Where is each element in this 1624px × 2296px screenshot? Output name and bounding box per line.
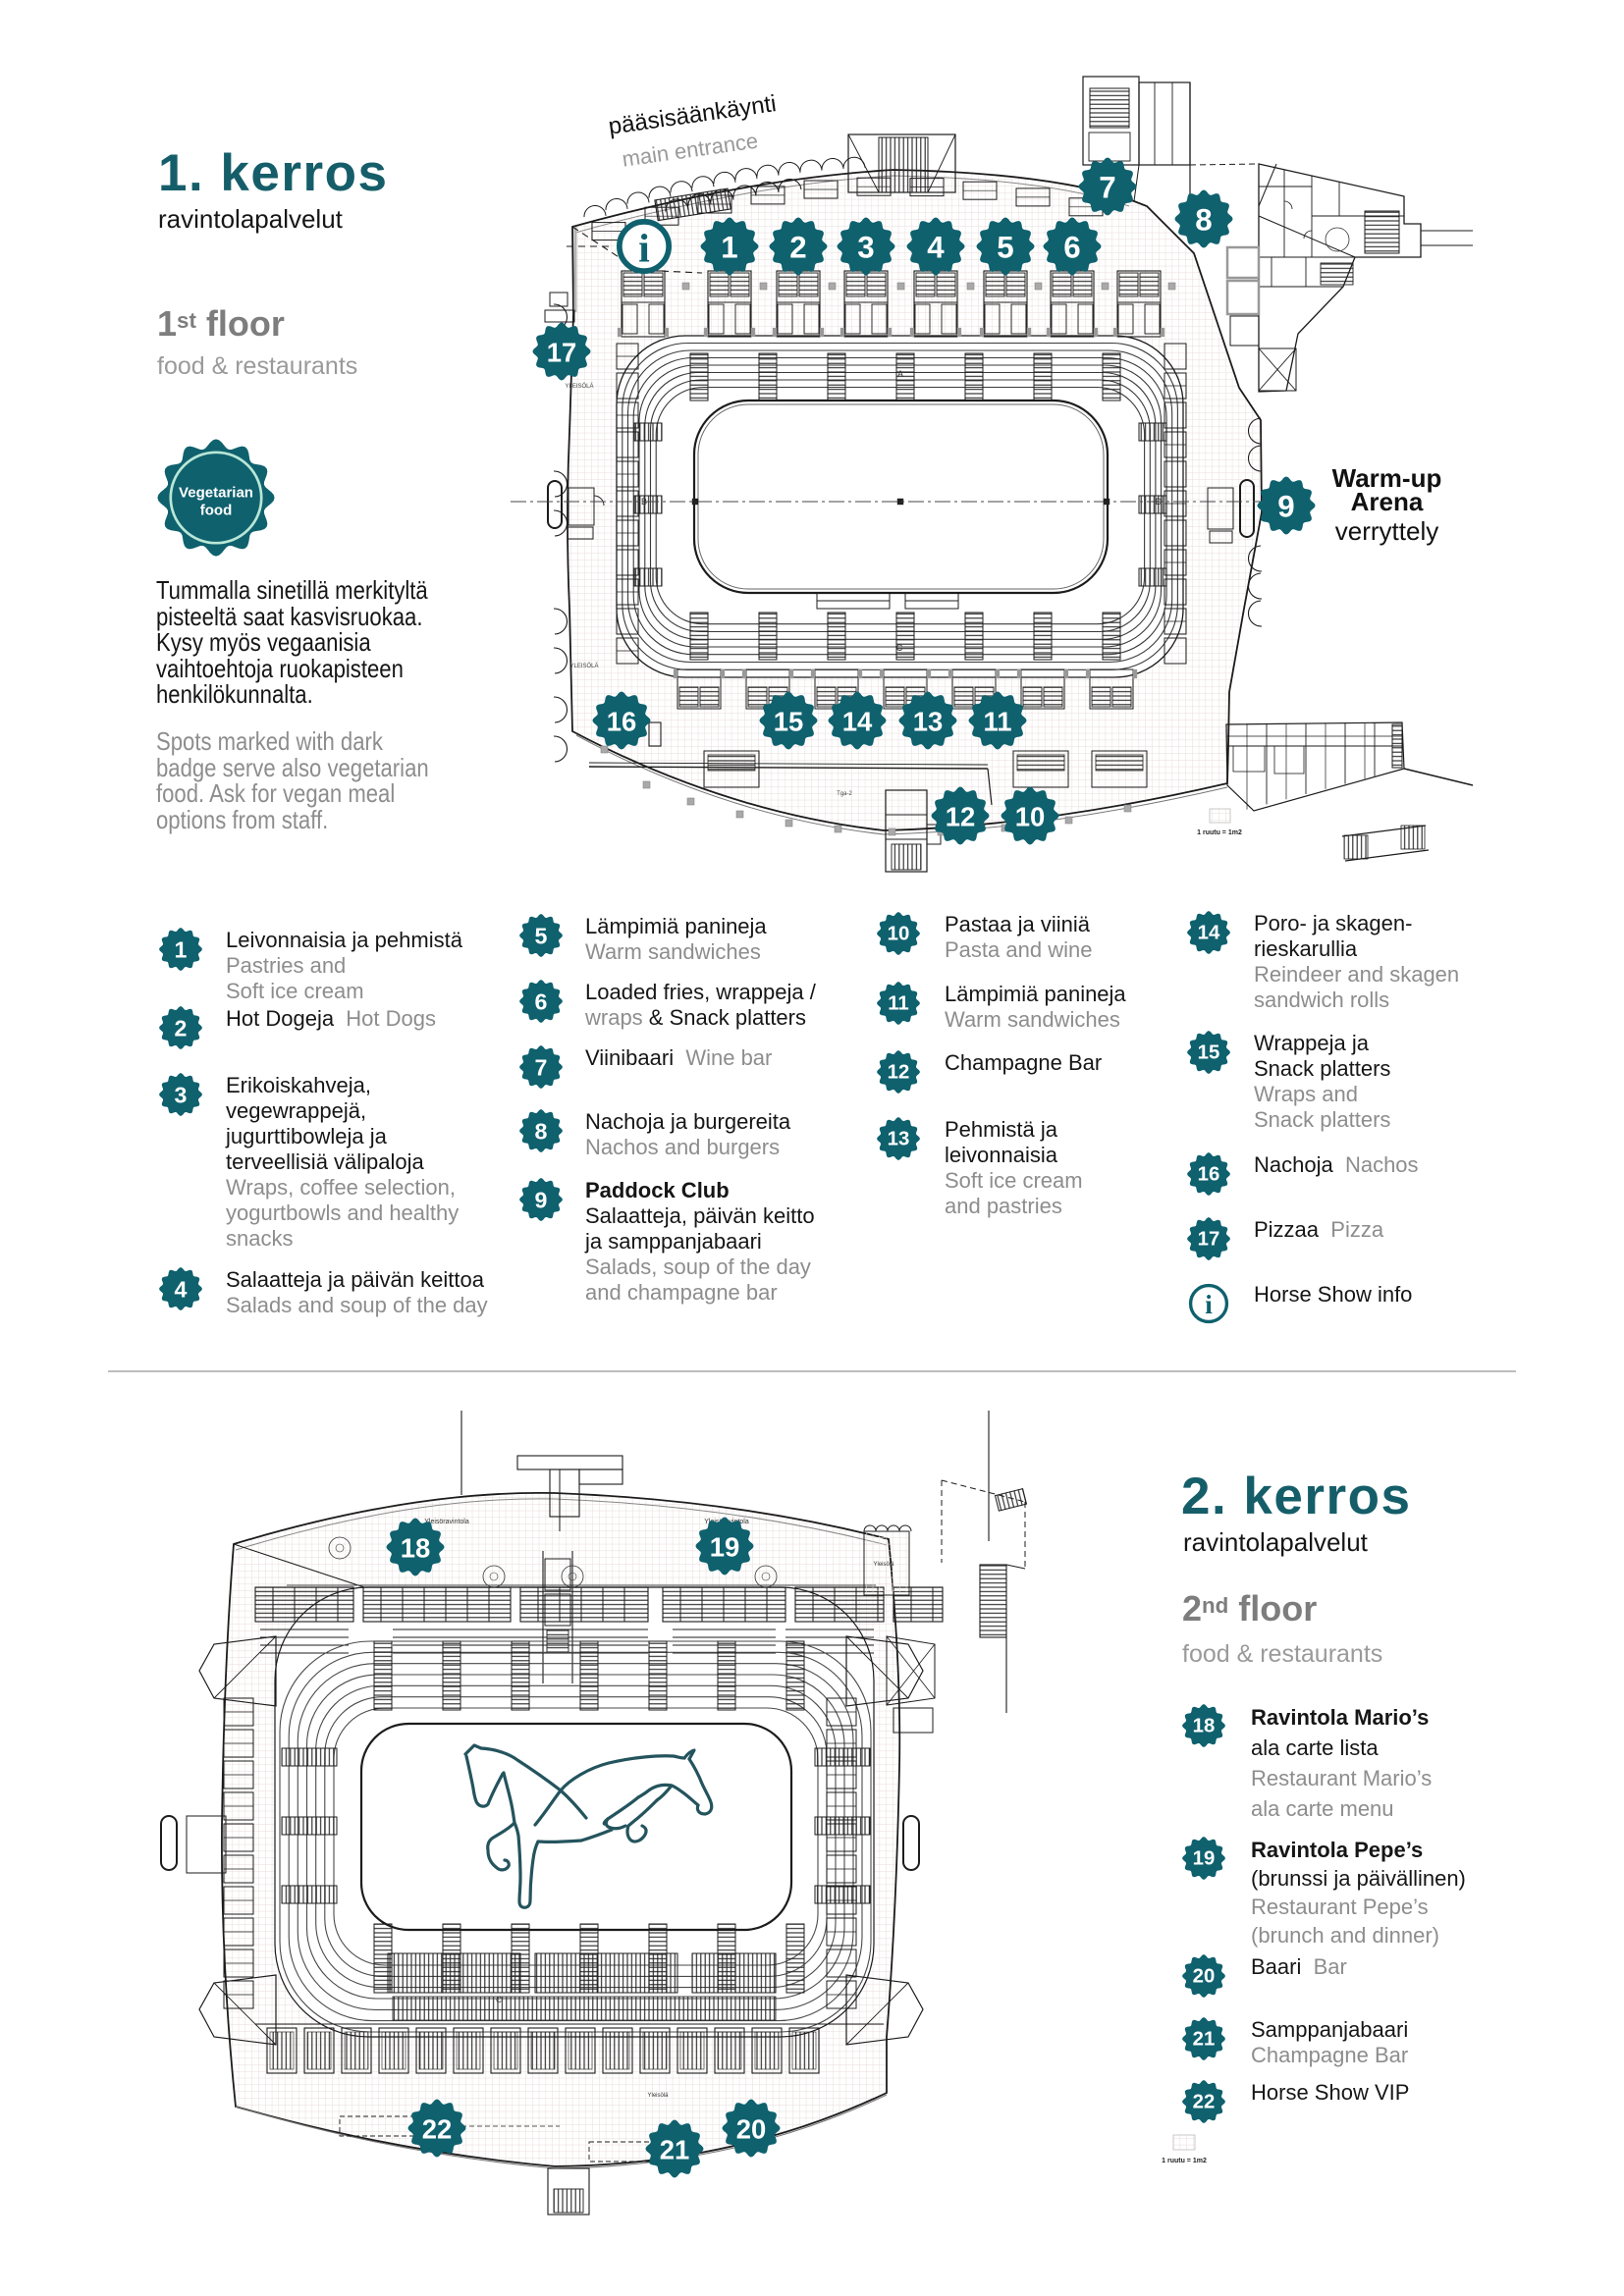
svg-text:17: 17 — [547, 337, 577, 367]
svg-text:Vegetarian: Vegetarian — [179, 485, 253, 502]
svg-text:9: 9 — [535, 1188, 548, 1213]
svg-text:21: 21 — [660, 2134, 690, 2164]
svg-text:YLEISÖLÄ: YLEISÖLÄ — [569, 663, 598, 669]
svg-text:10: 10 — [888, 924, 910, 945]
svg-text:19: 19 — [710, 1531, 740, 1562]
svg-text:3: 3 — [175, 1083, 188, 1108]
svg-text:6: 6 — [535, 989, 548, 1015]
svg-text:18: 18 — [401, 1532, 431, 1563]
svg-text:food: food — [200, 503, 233, 519]
svg-text:7: 7 — [1099, 170, 1115, 204]
svg-text:2: 2 — [789, 230, 806, 264]
svg-text:15: 15 — [774, 706, 804, 736]
svg-text:20: 20 — [736, 2113, 767, 2144]
svg-text:Yleisölä: Yleisölä — [873, 1562, 894, 1568]
svg-text:Yleisölä: Yleisölä — [647, 2093, 669, 2099]
svg-text:Tga-2: Tga-2 — [837, 791, 852, 797]
svg-text:12: 12 — [888, 1062, 910, 1084]
svg-text:1: 1 — [721, 230, 737, 264]
svg-text:A: A — [897, 369, 903, 379]
svg-text:8: 8 — [535, 1119, 548, 1145]
svg-text:B: B — [641, 497, 647, 507]
svg-text:9: 9 — [1277, 489, 1294, 523]
svg-text:8: 8 — [1195, 202, 1212, 237]
svg-text:D: D — [1156, 497, 1163, 507]
svg-text:13: 13 — [913, 706, 944, 736]
svg-text:13: 13 — [888, 1129, 910, 1150]
svg-text:22: 22 — [422, 2113, 453, 2144]
svg-text:4: 4 — [927, 230, 945, 264]
svg-text:7: 7 — [535, 1055, 548, 1081]
svg-text:16: 16 — [607, 706, 637, 736]
svg-text:3: 3 — [857, 230, 874, 264]
svg-text:16: 16 — [1198, 1164, 1220, 1186]
svg-text:14: 14 — [1198, 923, 1220, 944]
svg-text:5: 5 — [535, 924, 548, 949]
svg-text:5: 5 — [997, 230, 1013, 264]
svg-text:11: 11 — [888, 993, 909, 1015]
svg-text:i: i — [638, 225, 650, 270]
svg-text:12: 12 — [946, 801, 976, 831]
svg-text:C: C — [496, 1996, 502, 2004]
svg-text:1 ruutu = 1m2: 1 ruutu = 1m2 — [1197, 829, 1242, 836]
svg-text:14: 14 — [842, 706, 873, 736]
svg-text:4: 4 — [175, 1277, 188, 1303]
svg-text:i: i — [1205, 1290, 1213, 1319]
svg-text:C: C — [896, 643, 903, 653]
svg-text:11: 11 — [983, 706, 1011, 736]
svg-text:15: 15 — [1198, 1042, 1220, 1064]
svg-text:1 ruutu = 1m2: 1 ruutu = 1m2 — [1162, 2158, 1207, 2164]
svg-text:6: 6 — [1063, 230, 1080, 264]
svg-text:YLEISÖLÄ: YLEISÖLÄ — [565, 383, 593, 390]
svg-text:17: 17 — [1198, 1229, 1220, 1251]
svg-text:1: 1 — [175, 937, 188, 963]
svg-text:2: 2 — [175, 1016, 188, 1041]
svg-text:10: 10 — [1015, 801, 1046, 831]
